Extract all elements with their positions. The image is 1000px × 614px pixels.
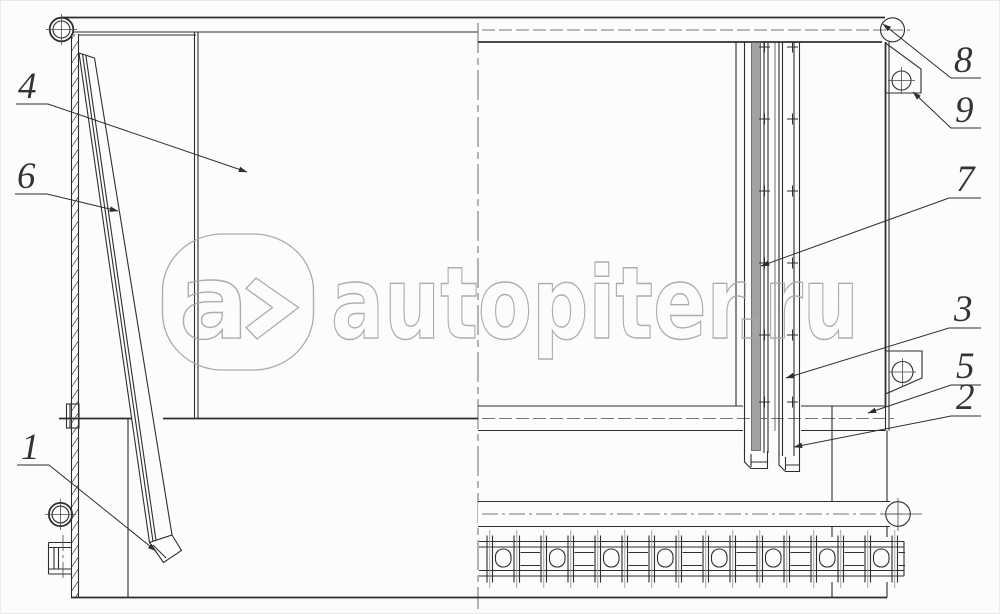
chevron-right-icon [246, 278, 299, 339]
callout-3: 3 [954, 291, 973, 328]
schematic-page: a autopiter.ru 4 6 1 8 9 7 3 5 2 [0, 0, 1000, 614]
watermark: a autopiter.ru [163, 234, 860, 370]
callout-7: 7 [956, 161, 975, 198]
mount-bracket-top [886, 43, 922, 94]
middle-tube [478, 406, 894, 431]
watermark-text: autopiter.ru [331, 245, 859, 362]
leader-1 [17, 465, 156, 551]
bottom-tube [478, 498, 922, 531]
hinge-chain [479, 530, 918, 588]
clamp-bracket [49, 535, 72, 581]
watermark-logo-char: a [179, 243, 249, 363]
autopiter-logo-icon: a [163, 234, 314, 370]
callout-1: 1 [21, 429, 40, 466]
stake-strip [79, 53, 182, 563]
callout-9: 9 [955, 92, 974, 129]
callout-6: 6 [17, 158, 36, 195]
callout-8: 8 [954, 42, 973, 79]
mount-bracket-bottom [886, 351, 923, 394]
assembly-drawing: a autopiter.ru [1, 1, 1000, 614]
top-tube [61, 18, 910, 43]
callout-4: 4 [18, 68, 37, 105]
leader-4 [16, 104, 247, 172]
callout-2: 2 [956, 379, 975, 416]
